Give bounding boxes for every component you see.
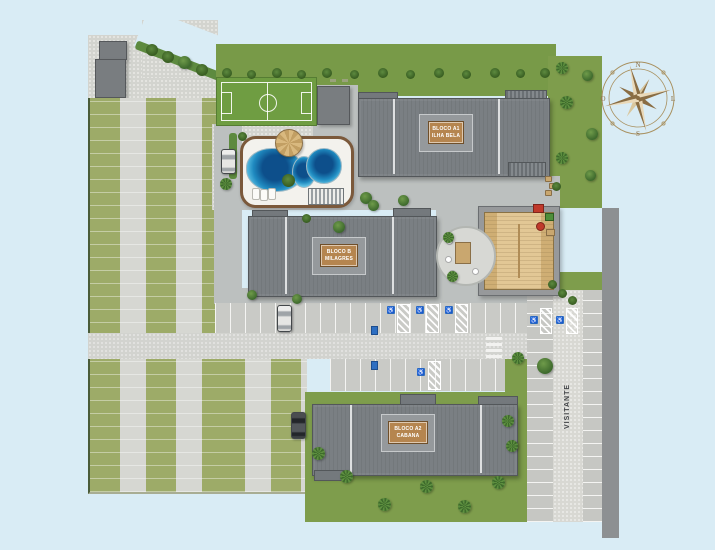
- hedge-bush: [406, 70, 415, 79]
- hedge-bush: [350, 70, 359, 79]
- palm-icon: [556, 152, 568, 164]
- accessible-stall-hatch: [426, 304, 439, 333]
- bloco-a1-line2: ILHA BELA: [429, 133, 463, 139]
- hedge-bush: [222, 68, 232, 78]
- wheelchair-icon: ♿: [387, 306, 395, 314]
- sun-lounger: [252, 188, 260, 200]
- palm-icon: [378, 498, 391, 511]
- tree-icon: [368, 200, 379, 211]
- bloco-b-line2: MILAGRES: [321, 256, 357, 262]
- hedge-bush: [378, 68, 388, 78]
- tree-icon: [247, 290, 257, 300]
- bloco-a2-joint: [480, 405, 482, 473]
- bloco-b-name-plate[interactable]: BLOCO B MILAGRES: [320, 244, 358, 267]
- hedge-bush: [548, 280, 557, 289]
- garden-mark: [342, 79, 348, 82]
- perimeter-road-east: [602, 208, 619, 538]
- hedge-bush: [558, 289, 567, 298]
- round-pool: [306, 148, 342, 184]
- hedge-bush: [146, 44, 158, 56]
- compass-north-label: N: [635, 61, 640, 69]
- bloco-a2-line2: CABANA: [389, 433, 427, 439]
- hedge-bush: [247, 70, 256, 79]
- hedge-bush: [162, 51, 174, 63]
- accessible-stall-hatch: [566, 308, 578, 334]
- wheelchair-icon: ♿: [530, 316, 538, 324]
- grass-paver-parking-west: [88, 98, 217, 494]
- garden-mark: [330, 79, 336, 82]
- plaza-table: [445, 256, 452, 263]
- tree-icon: [333, 221, 345, 233]
- hedge-bush: [540, 68, 550, 78]
- tree-icon: [398, 195, 409, 206]
- hedge-bush: [552, 182, 561, 191]
- hedge-bush: [434, 68, 444, 78]
- compass-rose: N L S O: [595, 55, 681, 141]
- palm-icon: [443, 232, 454, 243]
- bloco-a1-joint: [498, 99, 500, 174]
- hedge-bush: [462, 70, 471, 79]
- playground-item-green: [545, 213, 554, 221]
- accessible-stall-hatch: [428, 361, 441, 390]
- hedge-bush: [272, 68, 282, 78]
- tree-icon: [537, 358, 553, 374]
- plaza-kiosk: [455, 242, 471, 264]
- palm-icon: [420, 480, 433, 493]
- service-building-large: [95, 59, 126, 98]
- service-building-small: [99, 41, 127, 60]
- car: [221, 149, 236, 174]
- hedge-bush: [322, 68, 332, 78]
- palm-icon: [492, 476, 505, 489]
- tree-icon: [585, 170, 596, 181]
- tree-icon: [178, 56, 191, 69]
- soccer-field-lines: [221, 82, 312, 121]
- palm-icon: [502, 415, 514, 427]
- site-plan-canvas: VISITANTE BLOCO A1 ILHA BELA BLOCO B MIL…: [0, 0, 715, 550]
- visitor-stalls-east: [583, 290, 602, 522]
- hedge-bush: [490, 68, 500, 78]
- playground-item-tan: [546, 229, 555, 236]
- deck-bush: [282, 174, 295, 187]
- plaza-table: [472, 268, 479, 275]
- palm-icon: [512, 352, 524, 364]
- hedge-bush: [238, 132, 247, 141]
- playground-item-red: [533, 204, 544, 213]
- car: [291, 412, 306, 439]
- compass-east-label: L: [671, 95, 675, 103]
- deck-stairs: [308, 188, 344, 205]
- accessible-stall-hatch: [397, 304, 410, 333]
- gym-building: [317, 86, 350, 125]
- wheelchair-icon: ♿: [417, 368, 425, 376]
- compass-west-label: O: [600, 95, 605, 103]
- palm-icon: [447, 271, 458, 282]
- car: [277, 305, 292, 332]
- accessible-stall-hatch: [540, 308, 552, 334]
- main-road: [88, 333, 602, 359]
- accessible-stall-hatch: [455, 304, 468, 333]
- garden-bench: [545, 176, 552, 182]
- palm-icon: [458, 500, 471, 513]
- sun-lounger: [268, 188, 276, 200]
- bloco-a1-joint: [393, 99, 395, 174]
- bloco-a1-stair-south: [508, 162, 546, 177]
- crosswalk: [486, 335, 502, 358]
- wheelchair-icon: ♿: [556, 316, 564, 324]
- wheelchair-icon: ♿: [445, 306, 453, 314]
- hedge-bush: [516, 69, 525, 78]
- parking-sign: [371, 326, 378, 335]
- compass-south-label: S: [636, 130, 640, 138]
- parking-sign: [371, 361, 378, 370]
- soccer-field: [216, 77, 317, 126]
- tree-icon: [292, 294, 302, 304]
- bloco-a2-name-plate[interactable]: BLOCO A2 CABANA: [388, 421, 428, 444]
- wheelchair-icon: ♿: [416, 306, 424, 314]
- palm-icon: [560, 96, 573, 109]
- palm-icon: [312, 447, 325, 460]
- palm-icon: [506, 440, 518, 452]
- bloco-a2-joint: [350, 405, 352, 473]
- palm-icon: [556, 62, 568, 74]
- tree-icon: [582, 70, 593, 81]
- hedge-bush: [568, 296, 577, 305]
- garden-bench: [545, 190, 552, 196]
- hedge-bush: [297, 70, 306, 79]
- hedge-bush: [302, 214, 311, 223]
- sun-lounger: [260, 189, 268, 201]
- bloco-a1-name-plate[interactable]: BLOCO A1 ILHA BELA: [428, 121, 464, 144]
- palapa-umbrella: [275, 129, 303, 157]
- bloco-b-joint: [285, 217, 287, 294]
- palm-icon: [340, 470, 353, 483]
- visitor-lane-label: VISITANTE: [565, 383, 572, 428]
- playground-item-round: [536, 222, 545, 231]
- palm-icon: [220, 178, 232, 190]
- hedge-bush: [196, 64, 208, 76]
- bloco-b-joint: [392, 217, 394, 294]
